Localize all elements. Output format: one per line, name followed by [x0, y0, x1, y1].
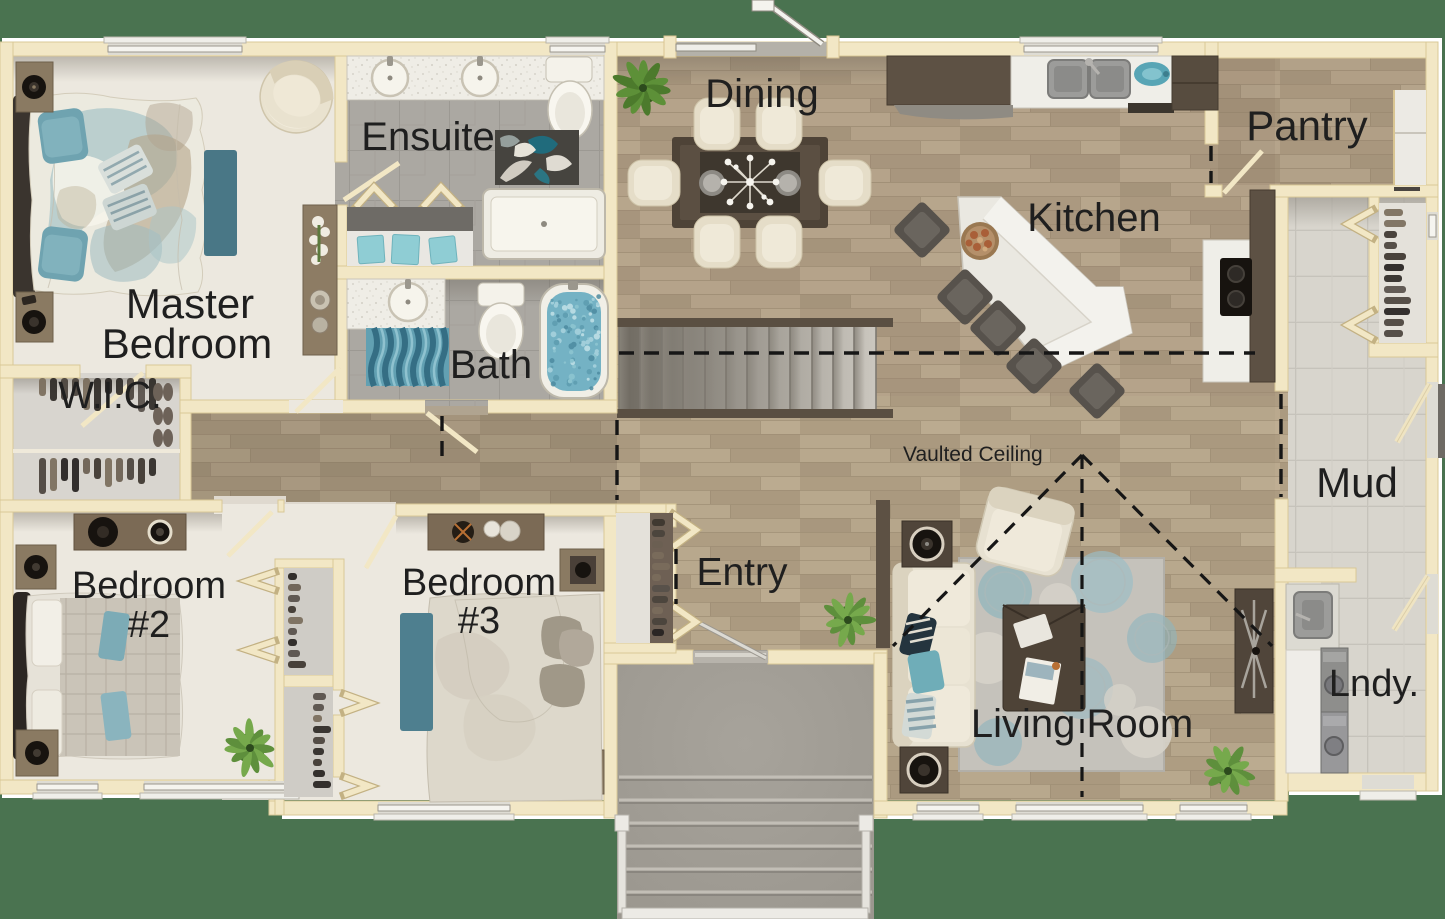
svg-text:Bedroom: Bedroom	[102, 320, 272, 367]
svg-text:#2: #2	[128, 604, 170, 646]
svg-text:Vaulted Ceiling: Vaulted Ceiling	[903, 443, 1043, 466]
svg-text:Bath: Bath	[450, 343, 532, 387]
svg-text:Pantry: Pantry	[1246, 102, 1367, 149]
svg-text:#3: #3	[458, 600, 500, 642]
svg-text:Dining: Dining	[705, 72, 818, 116]
svg-text:Kitchen: Kitchen	[1027, 196, 1160, 240]
svg-text:W.I.C.: W.I.C.	[58, 375, 161, 417]
svg-text:Ensuite: Ensuite	[361, 115, 494, 159]
svg-text:Bedroom: Bedroom	[72, 565, 226, 607]
svg-text:Living Room: Living Room	[971, 702, 1193, 746]
svg-text:Lndy.: Lndy.	[1329, 663, 1419, 705]
svg-text:Entry: Entry	[696, 551, 788, 594]
svg-text:Bedroom: Bedroom	[402, 562, 556, 604]
svg-text:Mud: Mud	[1316, 459, 1398, 506]
